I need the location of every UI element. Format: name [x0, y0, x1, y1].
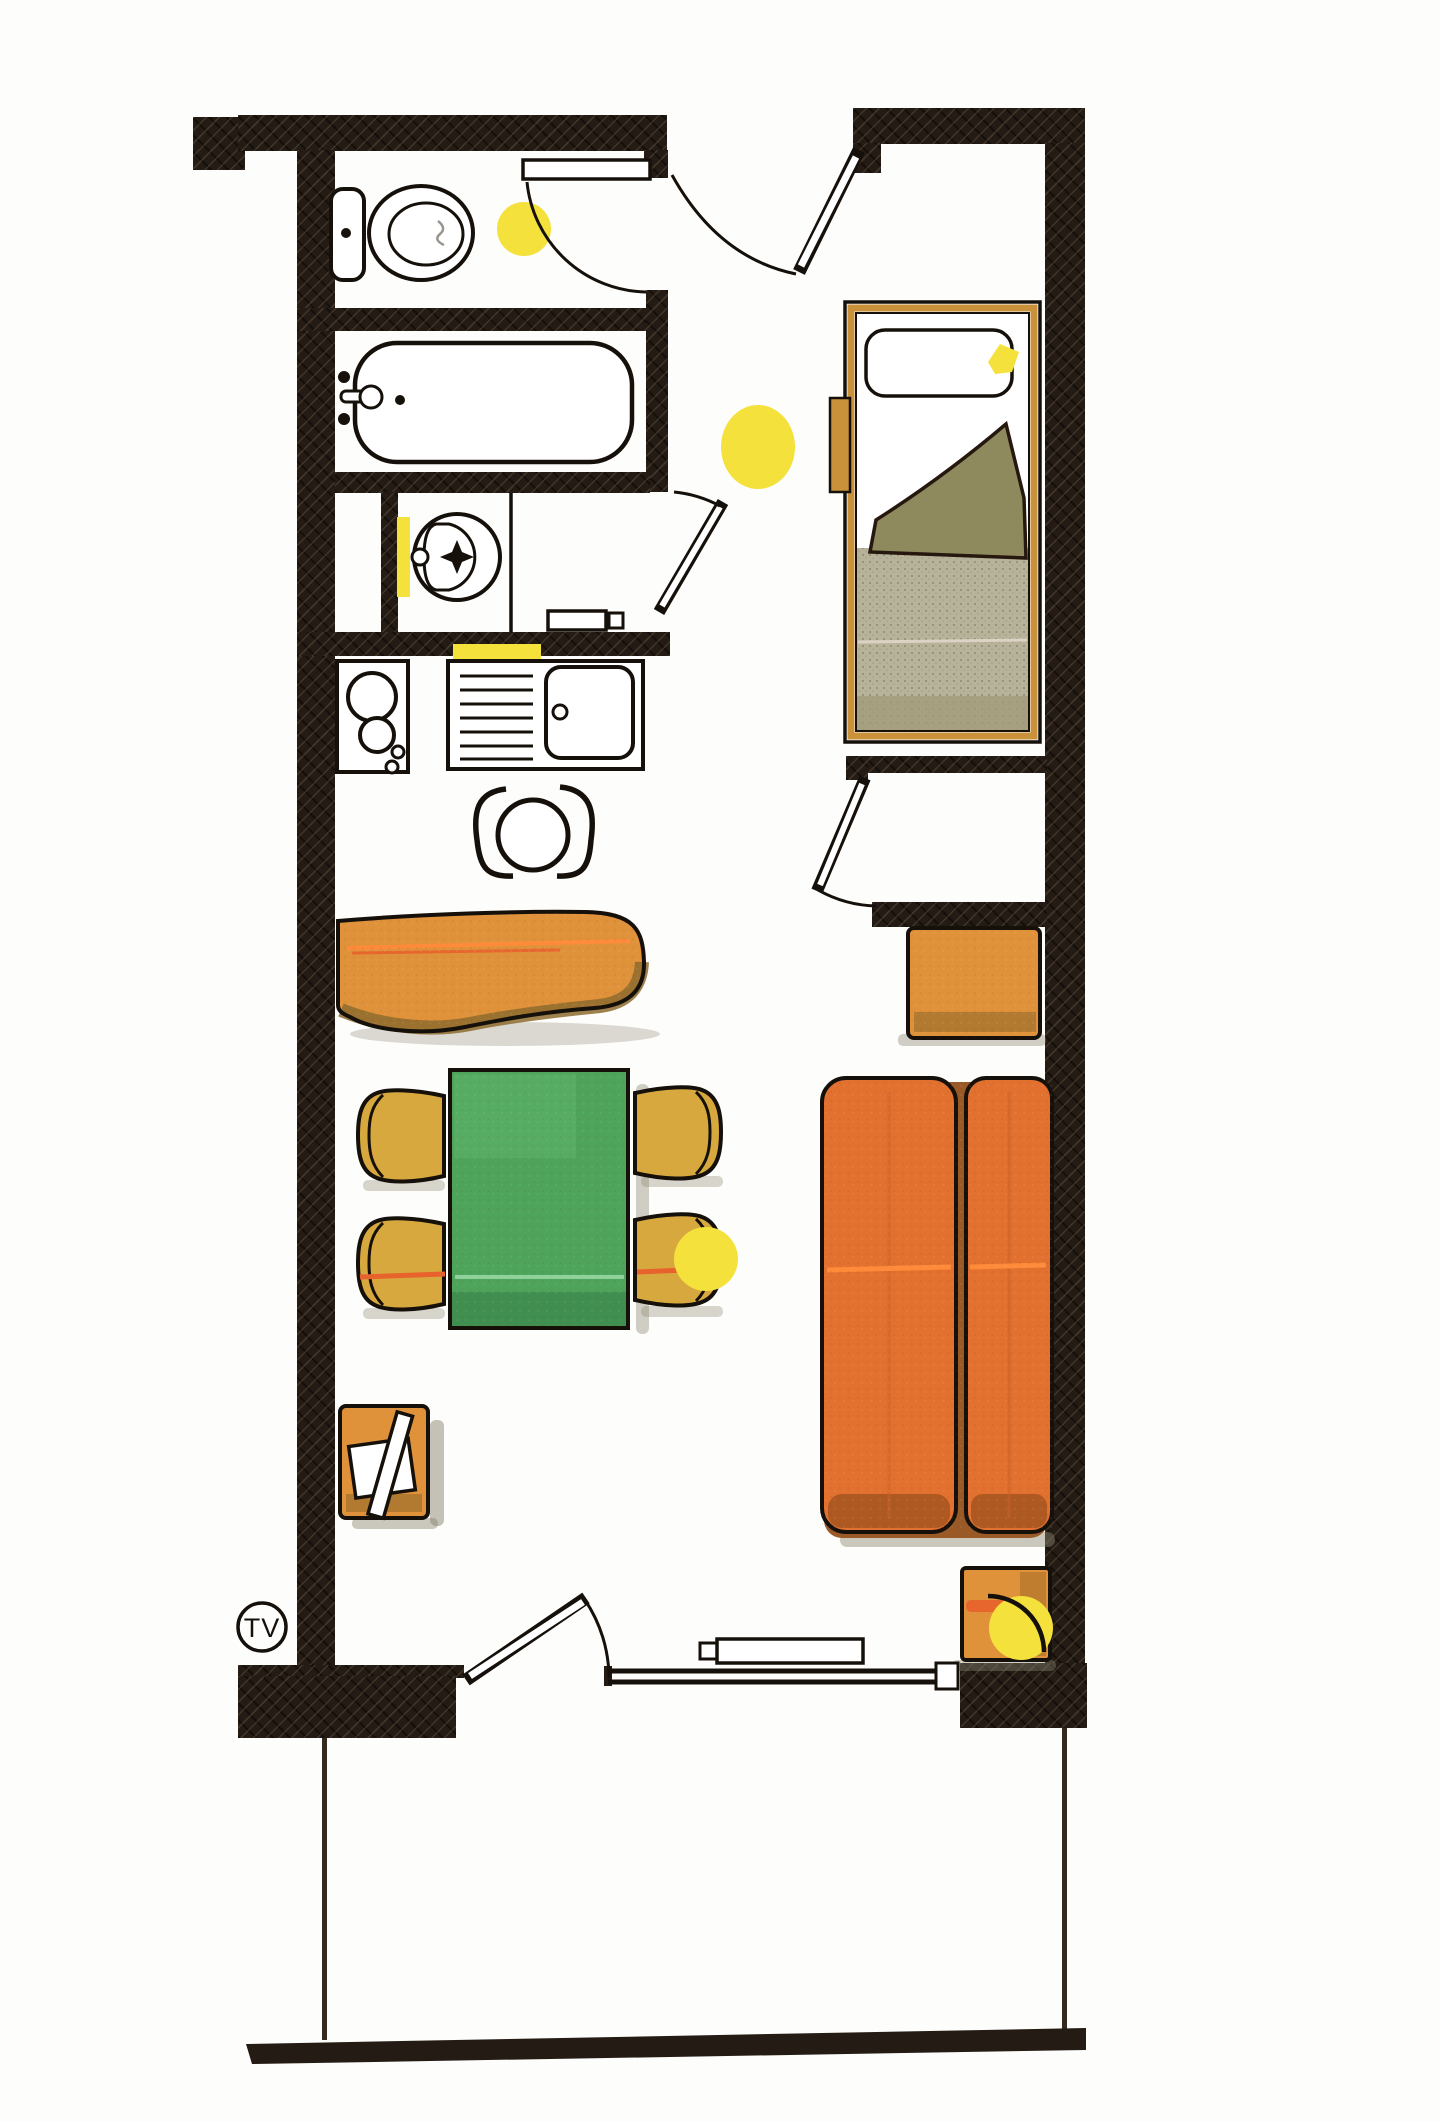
dining-table — [450, 1070, 628, 1328]
toilet — [331, 186, 473, 280]
bed-side-bracket — [830, 398, 850, 492]
ceiling-light-dining — [674, 1227, 738, 1291]
stool — [476, 787, 593, 876]
balcony-rail-left — [322, 1738, 327, 2040]
chair-top-right — [635, 1087, 721, 1178]
room-divider-door — [817, 778, 876, 906]
chair-bottom-right — [635, 1214, 738, 1305]
floor-plan-page: TV — [0, 0, 1440, 2122]
radiator-valve — [700, 1643, 717, 1659]
kitchenette — [337, 644, 643, 773]
tv-table — [340, 1406, 428, 1518]
entrance-door — [672, 150, 859, 274]
tv-badge-label: TV — [244, 1613, 281, 1643]
washbasin — [397, 493, 623, 632]
side-table-lamp — [962, 1568, 1053, 1660]
ceiling-light-hall — [721, 405, 795, 489]
balcony-door — [466, 1598, 609, 1680]
single-bed — [830, 302, 1040, 742]
tv-badge: TV — [238, 1603, 286, 1651]
bathroom-door — [659, 492, 723, 612]
plan-artwork: TV — [0, 0, 1440, 2122]
side-table-upper — [908, 928, 1040, 1038]
bench-sofa — [338, 912, 644, 1032]
chair-top-left — [358, 1090, 444, 1181]
yellow-strip-washroom — [397, 517, 410, 597]
balcony-edge — [246, 2028, 1086, 2064]
balcony-rail-right — [1062, 1728, 1067, 2032]
double-bed — [822, 1078, 1052, 1538]
chair-bottom-left — [358, 1218, 445, 1309]
radiator — [717, 1639, 863, 1663]
yellow-strip-kitchen — [453, 644, 541, 659]
window-and-balcony — [246, 1639, 1086, 2064]
bathtub — [338, 343, 632, 462]
